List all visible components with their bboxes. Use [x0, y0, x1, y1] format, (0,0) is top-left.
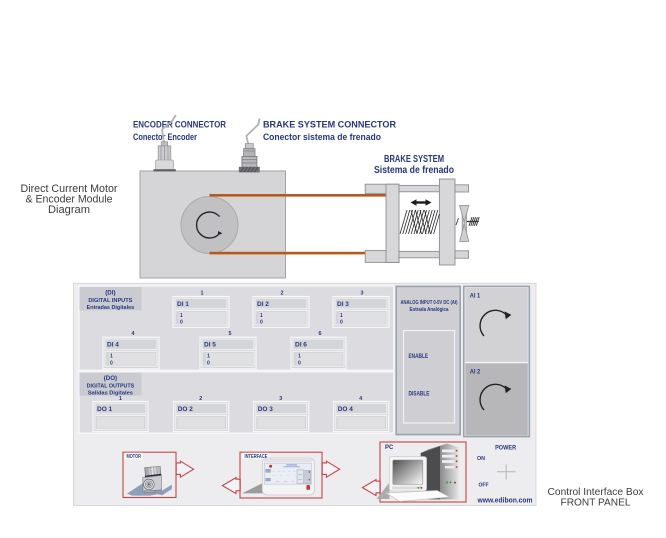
svg-text:1: 1 — [340, 313, 343, 319]
svg-text:Sistema de frenado: Sistema de frenado — [374, 165, 454, 176]
svg-text:ANALOG INPUT 0-5V DC (AI): ANALOG INPUT 0-5V DC (AI) — [401, 300, 458, 306]
svg-text:DI 2: DI 2 — [257, 301, 269, 308]
svg-text:www.edibon.com: www.edibon.com — [477, 495, 533, 504]
svg-text:PC: PC — [385, 445, 394, 451]
svg-text:3: 3 — [279, 396, 282, 402]
svg-text:4: 4 — [132, 331, 135, 337]
svg-text:1: 1 — [207, 354, 210, 360]
svg-text:DI 3: DI 3 — [337, 301, 349, 308]
svg-text:DIGITAL OUTPUTS: DIGITAL OUTPUTS — [87, 383, 135, 389]
svg-text:0: 0 — [298, 361, 301, 367]
svg-text:DI 1: DI 1 — [177, 301, 189, 308]
svg-text:0: 0 — [180, 319, 183, 325]
svg-text:BRAKE SYSTEM CONNECTOR: BRAKE SYSTEM CONNECTOR — [263, 120, 396, 130]
svg-text:2: 2 — [199, 396, 202, 402]
svg-text:BRAKE SYSTEM: BRAKE SYSTEM — [384, 154, 444, 165]
svg-text:ENABLE: ENABLE — [409, 353, 429, 360]
svg-text:Entrada Analógica: Entrada Analógica — [410, 307, 450, 313]
svg-text:1: 1 — [298, 354, 301, 360]
svg-text:1: 1 — [260, 313, 263, 319]
svg-text:0: 0 — [260, 319, 263, 325]
svg-text:ENCODER CONNECTOR: ENCODER CONNECTOR — [133, 120, 226, 130]
svg-text:1: 1 — [110, 354, 113, 360]
svg-text:1: 1 — [119, 396, 122, 402]
svg-text:5: 5 — [229, 331, 232, 337]
svg-text:Entradas Digitales: Entradas Digitales — [87, 305, 135, 311]
svg-text:Salidas Digitales: Salidas Digitales — [88, 391, 134, 397]
svg-text:4: 4 — [359, 396, 362, 402]
svg-text:6: 6 — [319, 331, 322, 337]
svg-text:3: 3 — [361, 291, 364, 297]
svg-text:POWER: POWER — [495, 444, 516, 451]
svg-text:0: 0 — [207, 361, 210, 367]
svg-text:DO 4: DO 4 — [338, 406, 354, 413]
svg-text:MOTOR: MOTOR — [127, 454, 142, 460]
svg-text:DI 5: DI 5 — [204, 342, 216, 349]
svg-text:Conector Encoder: Conector Encoder — [133, 132, 197, 142]
svg-text:DI 4: DI 4 — [107, 342, 119, 349]
svg-text:DO 3: DO 3 — [258, 406, 274, 413]
svg-text:FRONT PANEL: FRONT PANEL — [561, 497, 631, 508]
svg-text:Diagram: Diagram — [48, 204, 90, 216]
svg-text:AI 1: AI 1 — [470, 293, 481, 300]
svg-text:DO 2: DO 2 — [178, 406, 194, 413]
svg-text:DO 1: DO 1 — [97, 406, 113, 413]
svg-text:(DO): (DO) — [104, 375, 117, 382]
svg-text:0: 0 — [110, 361, 113, 367]
svg-text:ON: ON — [477, 456, 485, 462]
svg-text:DI 6: DI 6 — [295, 342, 307, 349]
svg-text:DIGITAL INPUTS: DIGITAL INPUTS — [88, 298, 132, 304]
svg-text:2: 2 — [281, 291, 284, 297]
svg-text:Conector sistema de frenado: Conector sistema de frenado — [263, 132, 381, 142]
svg-text:DISABLE: DISABLE — [409, 390, 430, 397]
svg-text:OFF: OFF — [479, 483, 489, 489]
svg-text:1: 1 — [180, 313, 183, 319]
svg-text:0: 0 — [340, 319, 343, 325]
svg-text:Control Interface Box: Control Interface Box — [548, 487, 645, 498]
svg-text:AI 2: AI 2 — [470, 369, 481, 376]
svg-text:1: 1 — [201, 291, 204, 297]
svg-text:(DI): (DI) — [105, 290, 115, 297]
